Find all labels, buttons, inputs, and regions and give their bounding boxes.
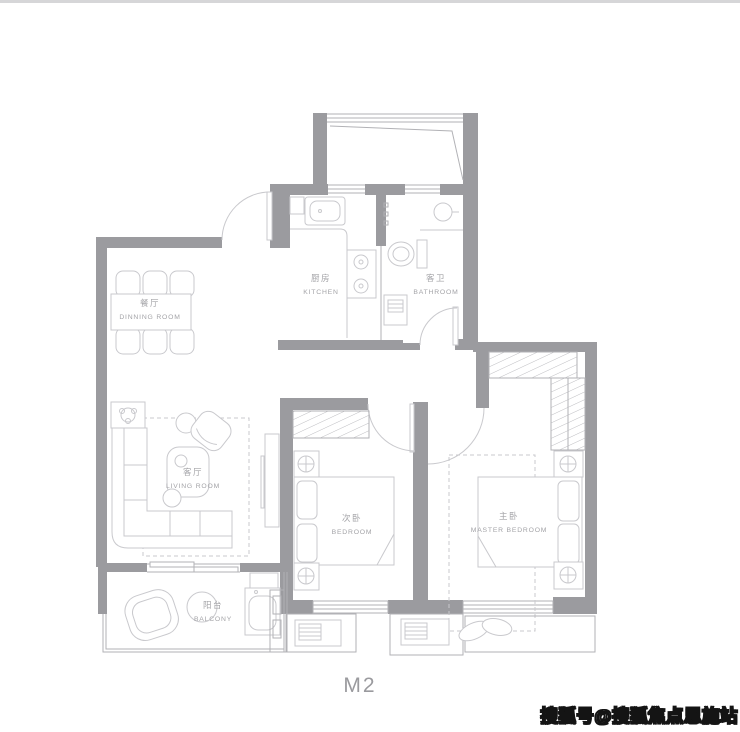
living-furniture	[111, 402, 279, 556]
kitchen-furniture	[290, 197, 376, 338]
kitchen-counter	[290, 229, 347, 338]
kitchen-window	[328, 185, 365, 193]
wall-bath-right	[463, 186, 478, 350]
wall-master-right	[585, 342, 597, 604]
master-label-zh: 主卧	[499, 511, 519, 521]
plan-caption: M2	[300, 674, 420, 698]
bathroom-basin	[420, 203, 463, 230]
tv	[261, 456, 264, 508]
room-label-bathroom: 客卫 BATHROOM	[413, 273, 458, 296]
bedroom2-nightstand-bottom	[294, 563, 319, 590]
bedroom2-door	[368, 404, 415, 452]
dining-chair	[143, 271, 167, 297]
washing-machine	[245, 588, 280, 635]
dining-chair	[170, 271, 194, 297]
pouf	[163, 489, 181, 507]
balcony-sliding-door	[147, 562, 240, 572]
wall-master-door-stub	[476, 352, 489, 408]
master-wardrobe-side	[551, 378, 585, 450]
floorplan-image: 餐厅 DINNING ROOM 厨房 KITCHEN 客卫 BATHROOM 客…	[0, 0, 740, 732]
side-table-plant	[111, 402, 145, 428]
dining-label-en: DINNING ROOM	[119, 314, 180, 321]
wall-bedroom2-bottom-left	[280, 600, 313, 614]
shaft-outline	[327, 114, 463, 180]
wall-balcony-divider-left	[107, 563, 147, 572]
master-furniture	[449, 352, 585, 631]
bathroom-window	[405, 185, 440, 193]
bathroom-furniture	[384, 203, 463, 325]
master-label-en: MASTER BEDROOM	[471, 527, 548, 534]
wall-bath-bottom	[381, 343, 420, 350]
master-door	[428, 408, 484, 464]
master-nightstand-bottom	[554, 562, 583, 589]
bathroom-washer	[384, 295, 407, 325]
ac-platform-left	[286, 614, 356, 652]
master-window	[463, 601, 553, 613]
wall-left	[96, 237, 107, 567]
toilet	[388, 240, 427, 268]
master-bed	[478, 477, 582, 567]
balcony-label-zh: 阳台	[203, 600, 223, 610]
bedroom2-nightstand-top	[294, 451, 319, 477]
room-label-kitchen: 厨房 KITCHEN	[303, 273, 338, 296]
wall-bedroom2-bottom-right	[388, 600, 413, 614]
dining-chair	[170, 328, 194, 354]
balcony-label-en: BALCONY	[194, 616, 232, 623]
wall-shaft-stub-left	[313, 113, 327, 186]
lounge-chair	[121, 585, 183, 644]
wall-shaft-stub-right	[463, 113, 478, 186]
wall-kitchen-bath-divider	[376, 190, 386, 246]
bedroom2-label-zh: 次卧	[342, 513, 362, 523]
kitchen-appliance	[290, 197, 304, 214]
bedroom2-label-en: BEDROOM	[332, 529, 373, 536]
wall-master-bottom-right	[553, 597, 597, 614]
wall-bedroom-divider	[413, 402, 428, 614]
wall-kitchen-top-a	[288, 184, 328, 195]
ac-platform-middle	[390, 614, 463, 655]
bathroom-label-zh: 客卫	[426, 273, 446, 283]
kitchen-stove	[347, 250, 376, 298]
floorplan-svg: 餐厅 DINNING ROOM 厨房 KITCHEN 客卫 BATHROOM 客…	[0, 0, 740, 732]
wall-entry-stub	[270, 184, 290, 248]
wall-bedroom2-top	[280, 398, 368, 410]
kitchen-label-zh: 厨房	[311, 273, 331, 283]
balcony-shelf	[250, 573, 278, 588]
bedroom2-wardrobe	[293, 411, 369, 438]
kitchen-label-en: KITCHEN	[303, 289, 338, 296]
kitchen-sink	[305, 197, 345, 225]
exterior-elements	[270, 590, 595, 655]
wall-master-top	[473, 342, 597, 352]
dining-furniture	[111, 271, 194, 354]
dining-label-zh: 餐厅	[140, 298, 160, 308]
bathroom-door	[420, 307, 458, 345]
wall-balcony-left	[98, 567, 107, 614]
bedroom2-furniture	[293, 411, 394, 590]
bedroom2-window	[313, 601, 388, 613]
master-wardrobe-top	[489, 352, 577, 378]
wall-balcony-divider-right	[240, 563, 284, 572]
living-label-en: LIVING ROOM	[166, 483, 220, 490]
dining-chair	[116, 328, 140, 354]
tv-cabinet	[261, 434, 279, 527]
wall-master-bottom-left	[428, 600, 463, 614]
bathroom-label-en: BATHROOM	[413, 289, 458, 296]
master-nightstand-top	[554, 451, 583, 477]
watermark-text: 搜狐号@搜狐焦点恩施站	[540, 703, 738, 728]
dining-chair	[116, 271, 140, 297]
living-label-zh: 客厅	[183, 467, 203, 477]
dining-chair	[143, 328, 167, 354]
entry-door	[222, 192, 272, 240]
balcony-furniture	[121, 573, 280, 645]
wall-dining-top	[96, 237, 222, 248]
